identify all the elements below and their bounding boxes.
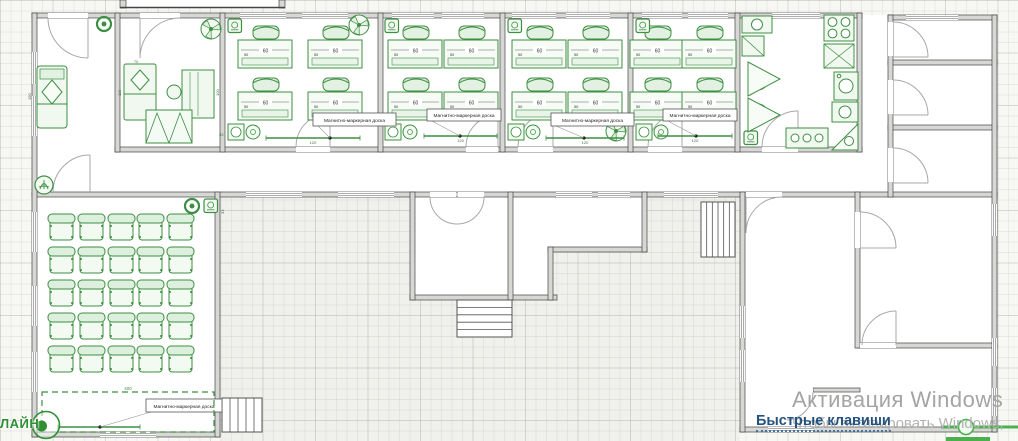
svg-text:60: 60	[655, 49, 661, 55]
auditorium-chair	[48, 247, 75, 273]
plant-icon	[35, 176, 53, 194]
svg-text:50: 50	[518, 105, 522, 109]
svg-text:60: 60	[333, 101, 339, 107]
auditorium-chair	[108, 247, 135, 273]
auditorium-chair	[108, 313, 135, 339]
ac-unit-icon	[385, 19, 399, 33]
auditorium-chair	[137, 247, 164, 273]
board-label: Магнитно-маркерная доска	[324, 118, 385, 124]
auditorium-chair	[48, 214, 75, 240]
svg-text:60: 60	[469, 49, 475, 55]
auditorium-chair	[48, 313, 75, 339]
auditorium-chair	[108, 280, 135, 306]
svg-text:33: 33	[220, 209, 225, 214]
svg-text:60: 60	[707, 49, 713, 55]
auditorium-chair	[167, 280, 194, 306]
svg-text:60: 60	[707, 101, 713, 107]
svg-text:50: 50	[394, 105, 398, 109]
auditorium-chair	[108, 214, 135, 240]
ac-unit-icon	[744, 131, 758, 145]
svg-text:190: 190	[27, 93, 32, 100]
svg-text:50: 50	[450, 105, 454, 109]
board-label: Магнитно-маркерная доска	[433, 113, 494, 119]
svg-text:60: 60	[537, 49, 543, 55]
logo-text: ЛАЙН	[0, 416, 39, 431]
svg-text:60: 60	[655, 101, 661, 107]
board-label: Магнитно-маркерная доска	[153, 404, 214, 410]
shortcut-keys-link[interactable]: Быстрые клавиши	[756, 413, 891, 432]
lounge-sofa	[37, 66, 67, 128]
svg-text:50: 50	[636, 53, 640, 57]
svg-text:60: 60	[593, 101, 599, 107]
svg-text:50: 50	[574, 105, 578, 109]
svg-text:50: 50	[688, 105, 692, 109]
ac-unit-icon	[508, 19, 522, 33]
auditorium-chair	[48, 280, 75, 306]
svg-text:120: 120	[582, 140, 589, 145]
svg-text:33: 33	[219, 132, 224, 137]
auditorium-chair	[137, 280, 164, 306]
svg-text:50: 50	[518, 53, 522, 57]
svg-text:60: 60	[413, 101, 419, 107]
board-label: Магнитно-маркерная доска	[562, 118, 623, 124]
svg-text:50: 50	[450, 53, 454, 57]
svg-text:60: 60	[413, 49, 419, 55]
auditorium-chair	[108, 346, 135, 372]
sink-icon	[636, 124, 668, 140]
sink-icon	[385, 124, 417, 140]
sink-icon	[228, 124, 260, 140]
auditorium-chair	[167, 313, 194, 339]
ac-unit-icon	[636, 19, 650, 33]
svg-text:50: 50	[314, 105, 318, 109]
svg-text:120: 120	[310, 140, 317, 145]
bedroom-wardrobe	[146, 110, 192, 143]
auditorium-chair	[78, 247, 105, 273]
auditorium-chair	[137, 214, 164, 240]
svg-text:50: 50	[688, 53, 692, 57]
auditorium-chair	[48, 346, 75, 372]
svg-text:400: 400	[124, 386, 132, 391]
svg-text:60: 60	[469, 101, 475, 107]
svg-text:60: 60	[263, 49, 269, 55]
sink-icon	[508, 124, 540, 140]
auditorium-chair	[78, 346, 105, 372]
svg-text:70: 70	[134, 60, 138, 64]
board-drag-handle[interactable]	[959, 420, 974, 435]
svg-text:60: 60	[537, 101, 543, 107]
auditorium-chair	[167, 346, 194, 372]
floorplan-svg[interactable]: 6050605060506050605060506050605060506050…	[0, 0, 1018, 441]
svg-text:100: 100	[215, 89, 220, 96]
svg-text:120: 120	[692, 138, 699, 143]
svg-text:120: 120	[457, 138, 464, 143]
svg-text:50: 50	[244, 53, 248, 57]
svg-text:60: 60	[263, 101, 269, 107]
svg-text:50: 50	[636, 105, 640, 109]
auditorium-chair	[167, 214, 194, 240]
fan-icon	[201, 19, 221, 39]
floorplan-canvas[interactable]: 6050605060506050605060506050605060506050…	[0, 0, 1018, 441]
svg-text:50: 50	[394, 53, 398, 57]
board-label: Магнитно-маркерная доска	[669, 113, 730, 119]
fan-icon	[349, 15, 369, 35]
ac-unit-icon	[228, 19, 242, 33]
auditorium-chair	[78, 280, 105, 306]
svg-text:50: 50	[314, 53, 318, 57]
svg-text:50: 50	[244, 105, 248, 109]
selected-wall-highlight	[946, 437, 990, 441]
svg-text:60: 60	[333, 49, 339, 55]
svg-text:50: 50	[574, 53, 578, 57]
auditorium-chair	[78, 214, 105, 240]
auditorium-chair	[167, 247, 194, 273]
auditorium-chair	[137, 346, 164, 372]
ac-unit-icon	[204, 199, 218, 213]
svg-text:60: 60	[593, 49, 599, 55]
svg-text:110: 110	[117, 89, 122, 96]
auditorium-chair	[78, 313, 105, 339]
auditorium-chair	[137, 313, 164, 339]
